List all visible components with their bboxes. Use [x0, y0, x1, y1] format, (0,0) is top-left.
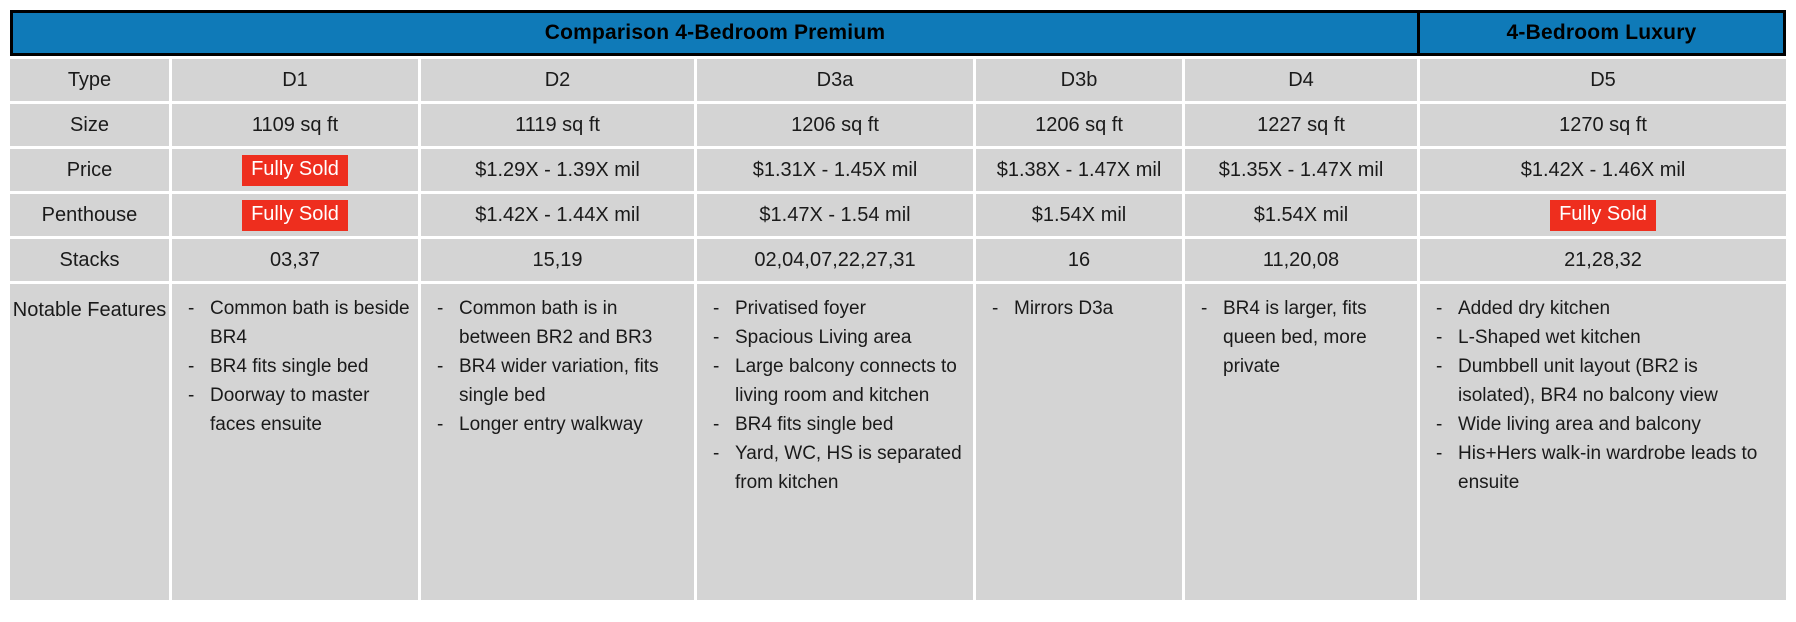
- row-label-stacks: Stacks: [10, 239, 169, 281]
- feature-item: Large balcony connects to living room an…: [709, 352, 965, 410]
- features-list-D4: BR4 is larger, fits queen bed, more priv…: [1197, 294, 1409, 381]
- feature-item: Common bath is in between BR2 and BR3: [433, 294, 686, 352]
- cell-size-D2: 1119 sq ft: [421, 104, 694, 146]
- feature-item: His+Hers walk-in wardrobe leads to ensui…: [1432, 439, 1778, 497]
- row-label-penthouse: Penthouse: [10, 194, 169, 236]
- cell-features-D2: Common bath is in between BR2 and BR3BR4…: [421, 284, 694, 600]
- cell-size-D5: 1270 sq ft: [1420, 104, 1786, 146]
- fully-sold-badge: Fully Sold: [242, 155, 348, 186]
- cell-features-D3b: Mirrors D3a: [976, 284, 1182, 600]
- row-label-features: Notable Features: [10, 284, 169, 600]
- cell-features-D5: Added dry kitchenL-Shaped wet kitchenDum…: [1420, 284, 1786, 600]
- cell-type-D3b: D3b: [976, 59, 1182, 101]
- header-luxury: 4-Bedroom Luxury: [1420, 13, 1783, 53]
- slide-canvas: Comparison 4-Bedroom Premium 4-Bedroom L…: [0, 0, 1796, 622]
- cell-price-D2: $1.29X - 1.39X mil: [421, 149, 694, 191]
- body-grid: TypeD1D2D3aD3bD4D5Size1109 sq ft1119 sq …: [10, 59, 1786, 600]
- feature-item: BR4 fits single bed: [709, 410, 965, 439]
- cell-stacks-D3b: 16: [976, 239, 1182, 281]
- features-list-D5: Added dry kitchenL-Shaped wet kitchenDum…: [1432, 294, 1778, 497]
- cell-size-D1: 1109 sq ft: [172, 104, 418, 146]
- feature-item: Added dry kitchen: [1432, 294, 1778, 323]
- feature-item: Doorway to master faces ensuite: [184, 381, 410, 439]
- cell-penthouse-D3b: $1.54X mil: [976, 194, 1182, 236]
- cell-type-D1: D1: [172, 59, 418, 101]
- cell-penthouse-D5: Fully Sold: [1420, 194, 1786, 236]
- cell-features-D3a: Privatised foyerSpacious Living areaLarg…: [697, 284, 973, 600]
- cell-penthouse-D2: $1.42X - 1.44X mil: [421, 194, 694, 236]
- cell-type-D3a: D3a: [697, 59, 973, 101]
- row-label-size: Size: [10, 104, 169, 146]
- cell-stacks-D1: 03,37: [172, 239, 418, 281]
- comparison-table: Comparison 4-Bedroom Premium 4-Bedroom L…: [10, 10, 1786, 600]
- cell-size-D3a: 1206 sq ft: [697, 104, 973, 146]
- feature-item: L-Shaped wet kitchen: [1432, 323, 1778, 352]
- feature-item: Spacious Living area: [709, 323, 965, 352]
- cell-stacks-D3a: 02,04,07,22,27,31: [697, 239, 973, 281]
- cell-penthouse-D4: $1.54X mil: [1185, 194, 1417, 236]
- fully-sold-badge: Fully Sold: [1550, 200, 1656, 231]
- cell-features-D1: Common bath is beside BR4BR4 fits single…: [172, 284, 418, 600]
- cell-penthouse-D1: Fully Sold: [172, 194, 418, 236]
- feature-item: Dumbbell unit layout (BR2 is isolated), …: [1432, 352, 1778, 410]
- feature-item: BR4 wider variation, fits single bed: [433, 352, 686, 410]
- cell-price-D3a: $1.31X - 1.45X mil: [697, 149, 973, 191]
- feature-item: Yard, WC, HS is separated from kitchen: [709, 439, 965, 497]
- cell-type-D5: D5: [1420, 59, 1786, 101]
- feature-item: Mirrors D3a: [988, 294, 1113, 323]
- row-label-price: Price: [10, 149, 169, 191]
- cell-price-D5: $1.42X - 1.46X mil: [1420, 149, 1786, 191]
- features-list-D3b: Mirrors D3a: [988, 294, 1113, 323]
- cell-type-D4: D4: [1185, 59, 1417, 101]
- features-list-D1: Common bath is beside BR4BR4 fits single…: [184, 294, 410, 439]
- cell-price-D4: $1.35X - 1.47X mil: [1185, 149, 1417, 191]
- feature-item: BR4 fits single bed: [184, 352, 410, 381]
- cell-features-D4: BR4 is larger, fits queen bed, more priv…: [1185, 284, 1417, 600]
- table-header-row: Comparison 4-Bedroom Premium 4-Bedroom L…: [10, 10, 1786, 56]
- cell-price-D3b: $1.38X - 1.47X mil: [976, 149, 1182, 191]
- cell-size-D4: 1227 sq ft: [1185, 104, 1417, 146]
- cell-penthouse-D3a: $1.47X - 1.54 mil: [697, 194, 973, 236]
- fully-sold-badge: Fully Sold: [242, 200, 348, 231]
- cell-stacks-D2: 15,19: [421, 239, 694, 281]
- row-label-type: Type: [10, 59, 169, 101]
- feature-item: BR4 is larger, fits queen bed, more priv…: [1197, 294, 1409, 381]
- features-list-D2: Common bath is in between BR2 and BR3BR4…: [433, 294, 686, 439]
- feature-item: Common bath is beside BR4: [184, 294, 410, 352]
- cell-size-D3b: 1206 sq ft: [976, 104, 1182, 146]
- header-premium: Comparison 4-Bedroom Premium: [13, 13, 1420, 53]
- cell-type-D2: D2: [421, 59, 694, 101]
- features-list-D3a: Privatised foyerSpacious Living areaLarg…: [709, 294, 965, 497]
- feature-item: Longer entry walkway: [433, 410, 686, 439]
- feature-item: Privatised foyer: [709, 294, 965, 323]
- feature-item: Wide living area and balcony: [1432, 410, 1778, 439]
- cell-stacks-D4: 11,20,08: [1185, 239, 1417, 281]
- cell-price-D1: Fully Sold: [172, 149, 418, 191]
- cell-stacks-D5: 21,28,32: [1420, 239, 1786, 281]
